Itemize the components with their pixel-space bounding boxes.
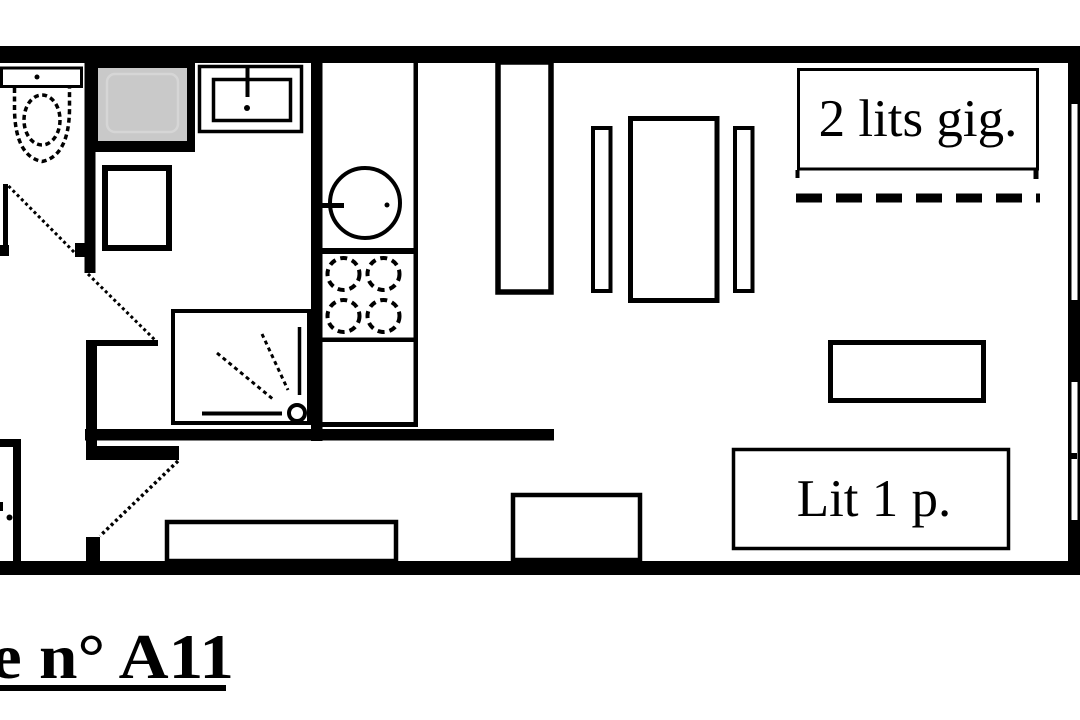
svg-text:Lit 1 p.: Lit 1 p. — [797, 470, 952, 528]
svg-text:e n° A11: e n° A11 — [0, 622, 234, 692]
svg-text:2 lits gig.: 2 lits gig. — [819, 90, 1018, 148]
